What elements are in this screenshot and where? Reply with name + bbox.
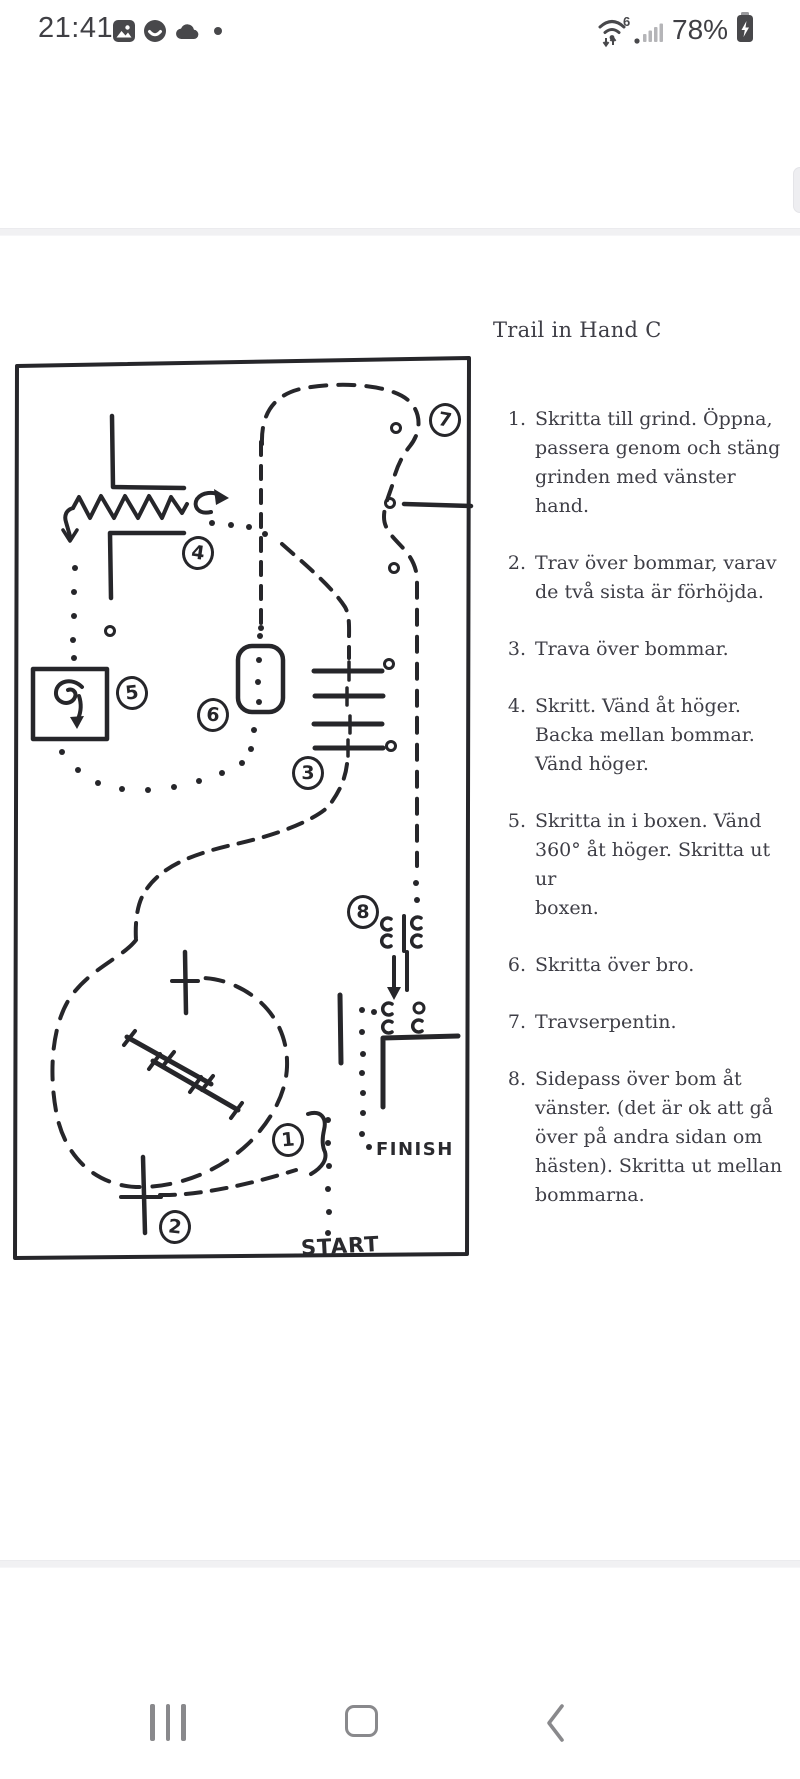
backing-wall-upper	[112, 416, 184, 488]
bottom-divider	[0, 1560, 800, 1568]
backing-wall-lower	[110, 533, 184, 598]
trail-course-diagram	[0, 340, 490, 1270]
instruction-item-1: 1. Skritta till grind. Öppna, passera ge…	[497, 405, 797, 521]
gallery-notification-icon	[112, 19, 136, 43]
instruction-number: 6.	[497, 951, 535, 980]
app-notification-icon	[143, 19, 167, 43]
instruction-number: 4.	[497, 692, 535, 779]
start-gate-bracket	[308, 1113, 325, 1174]
battery-percent: 78%	[672, 14, 728, 46]
spin-arrowhead	[70, 716, 84, 729]
instruction-item-7: 7. Travserpentin.	[497, 1008, 797, 1037]
battery-icon	[734, 12, 756, 44]
recents-icon	[181, 1704, 186, 1741]
zigzag-poles	[73, 496, 187, 518]
top-loop	[262, 385, 419, 486]
instruction-text: Travserpentin.	[535, 1008, 788, 1037]
phone-screen: 21:41 6	[0, 0, 800, 1779]
recents-icon	[150, 1704, 155, 1741]
sidepass-cones-upper	[382, 917, 421, 947]
spin-tail	[78, 696, 81, 719]
instruction-text: Sidepass över bom åt vänster. (det är ok…	[535, 1065, 788, 1210]
instruction-number: 5.	[497, 807, 535, 923]
cone-markers	[106, 424, 401, 751]
instruction-text: Skritt. Vänd åt höger. Backa mellan bomm…	[535, 692, 788, 779]
instruction-text: Skritta in i boxen. Vänd 360° åt höger. …	[535, 807, 788, 923]
wifi-generation-label: 6	[623, 14, 630, 29]
instruction-item-3: 3. Trava över bommar.	[497, 635, 797, 664]
signal-strength-icon	[634, 18, 666, 46]
instruction-item-8: 8. Sidepass över bom åt vänster. (det är…	[497, 1065, 797, 1210]
back-button[interactable]	[544, 1701, 568, 1750]
instruction-number: 1.	[497, 405, 535, 521]
instruction-item-6: 6. Skritta över bro.	[497, 951, 797, 980]
instruction-item-5: 5. Skritta in i boxen. Vänd 360° åt höge…	[497, 807, 797, 923]
loop-exit-tail	[160, 1170, 296, 1195]
instruction-item-4: 4. Skritt. Vänd åt höger. Backa mellan b…	[497, 692, 797, 779]
instruction-list: 1. Skritta till grind. Öppna, passera ge…	[497, 405, 797, 1238]
top-divider	[0, 228, 800, 236]
zigzag-exit-stroke	[65, 508, 73, 536]
finish-corner-wall	[383, 1036, 458, 1107]
wifi-6-icon: 6	[596, 12, 634, 48]
instruction-text: Skritta till grind. Öppna, passera genom…	[535, 405, 788, 521]
cloud-notification-icon	[174, 21, 202, 41]
sidepass-cones-lower	[383, 1003, 422, 1033]
recents-icon	[166, 1704, 171, 1741]
instruction-text: Skritta över bro.	[535, 951, 788, 980]
instruction-text: Trava över bommar.	[535, 635, 788, 664]
back-chevron-icon	[544, 1701, 568, 1745]
instruction-text: Trav över bommar, varav de två sista är …	[535, 549, 788, 607]
instruction-number: 3.	[497, 635, 535, 664]
instruction-item-2: 2. Trav över bommar, varav de två sista …	[497, 549, 797, 607]
instruction-number: 7.	[497, 1008, 535, 1037]
obstacle-marker-3: 3	[292, 756, 324, 790]
home-button[interactable]	[345, 1705, 378, 1737]
notification-icons	[112, 19, 222, 43]
obstacle-marker-8: 8	[347, 895, 379, 929]
navigation-bar	[0, 1690, 800, 1760]
gate-bar	[404, 504, 471, 506]
page-title: Trail in Hand C	[493, 318, 662, 342]
trot-approach	[282, 544, 349, 658]
instruction-number: 8.	[497, 1065, 535, 1210]
finish-side-wall	[340, 995, 341, 1063]
instruction-number: 2.	[497, 549, 535, 607]
pole-crossing-ticks	[347, 662, 350, 756]
more-notifications-dot	[214, 27, 222, 35]
trot-sweep	[136, 764, 347, 940]
status-indicators: 6 78%	[596, 12, 756, 48]
arena-border	[15, 358, 469, 1258]
clock: 21:41	[38, 12, 113, 45]
serpentine-right-line	[384, 486, 417, 866]
right-arrow-icon	[214, 489, 229, 505]
sidepass-cone-o	[414, 1003, 424, 1013]
finish-label: FINISH	[376, 1139, 454, 1160]
sidepass-arrowhead	[387, 987, 401, 1000]
recents-button[interactable]	[150, 1704, 186, 1741]
edge-panel-handle[interactable]	[793, 167, 800, 213]
start-label: START	[300, 1232, 380, 1260]
status-bar: 21:41 6	[0, 0, 800, 64]
